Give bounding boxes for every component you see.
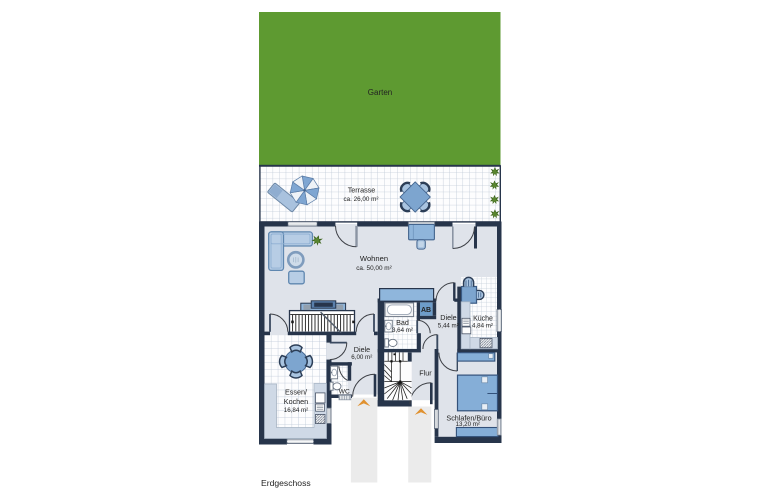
- svg-text:ca. 50,00 m²: ca. 50,00 m²: [356, 265, 392, 272]
- svg-text:Terrasse: Terrasse: [348, 186, 376, 195]
- svg-text:16,84 m²: 16,84 m²: [284, 407, 308, 414]
- svg-text:Küche: Küche: [473, 315, 493, 322]
- svg-text:Diele: Diele: [354, 345, 370, 354]
- svg-text:AB: AB: [421, 307, 431, 314]
- svg-text:13,20 m²: 13,20 m²: [456, 421, 480, 428]
- svg-text:Wohnen: Wohnen: [360, 254, 388, 263]
- svg-text:WC: WC: [339, 388, 350, 395]
- svg-text:3,64 m²: 3,64 m²: [392, 327, 413, 334]
- svg-text:Diele: Diele: [440, 313, 456, 322]
- svg-text:Erdgeschoss: Erdgeschoss: [261, 478, 311, 488]
- svg-text:5,44 m²: 5,44 m²: [438, 323, 459, 330]
- svg-text:Kochen: Kochen: [284, 397, 308, 406]
- svg-text:Essen/: Essen/: [285, 388, 307, 397]
- svg-text:Bad: Bad: [396, 318, 409, 327]
- svg-text:ca. 26,00 m²: ca. 26,00 m²: [344, 196, 379, 203]
- svg-text:6,00 m²: 6,00 m²: [351, 354, 372, 361]
- svg-text:4,84 m²: 4,84 m²: [472, 323, 493, 330]
- svg-text:Flur: Flur: [419, 368, 432, 377]
- svg-text:Garten: Garten: [368, 88, 392, 97]
